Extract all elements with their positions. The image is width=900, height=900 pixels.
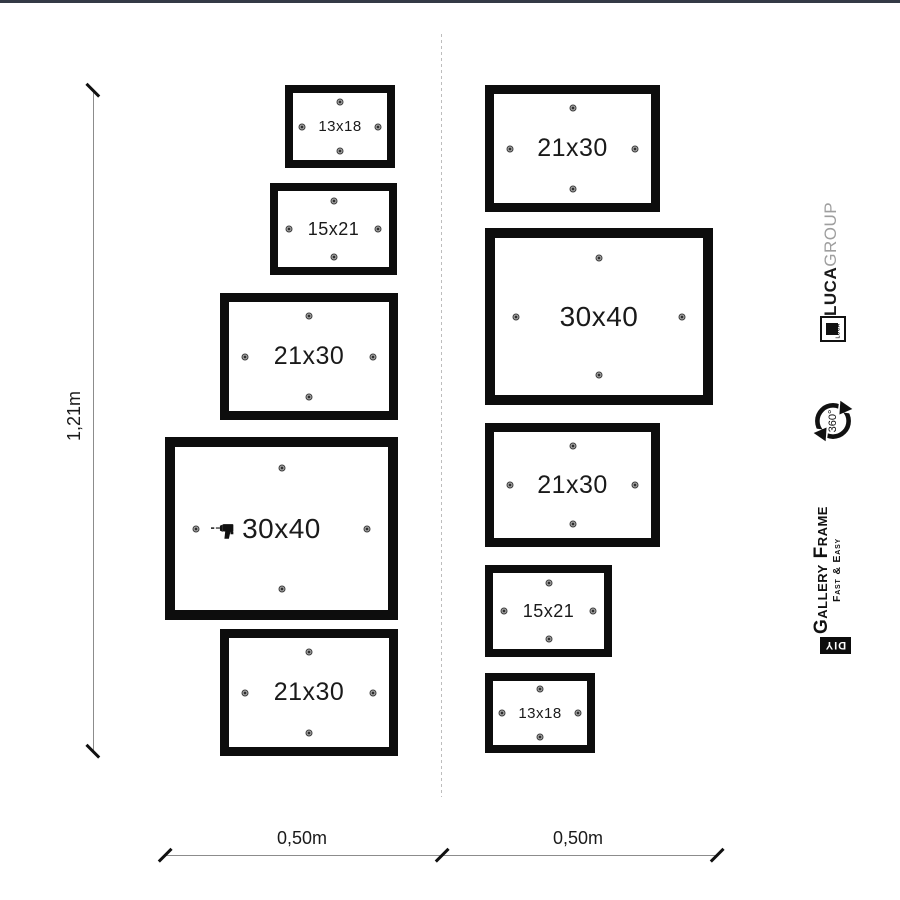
wall-height-label: 1,21m <box>64 374 86 458</box>
screw-dot <box>306 729 313 736</box>
frame-size-label: 21x30 <box>274 342 345 371</box>
height-dimension-line <box>93 89 94 752</box>
picture-frame: 30x40 <box>485 228 713 405</box>
screw-dot <box>537 733 544 740</box>
frame-size-label: 21x30 <box>274 678 345 707</box>
screw-dot <box>286 226 293 233</box>
screw-dot <box>512 313 519 320</box>
center-dashed-divider <box>441 34 442 797</box>
screw-dot <box>574 710 581 717</box>
screw-dot <box>374 226 381 233</box>
screw-dot <box>242 689 249 696</box>
picture-frame: 15x21 <box>270 183 397 275</box>
screw-dot <box>569 442 576 449</box>
picture-frame: 21x30 <box>220 293 398 420</box>
screw-dot <box>299 123 306 130</box>
screw-dot <box>501 608 508 615</box>
picture-frame: 15x21 <box>485 565 612 657</box>
gallery-wall-diagram: 1,21m 0,50m 0,50m 13x1815x2121x3030x4021… <box>0 0 900 900</box>
rotation-360-icon: 360° <box>810 397 856 445</box>
frame-size-label: 13x18 <box>518 705 561 722</box>
screw-dot <box>306 649 313 656</box>
screw-dot <box>337 98 344 105</box>
screw-dot <box>278 465 285 472</box>
screw-dot <box>632 482 639 489</box>
screw-dot <box>569 185 576 192</box>
product-name: Gallery Frame <box>812 497 831 643</box>
screw-dot <box>242 353 249 360</box>
picture-frame: 21x30 <box>220 629 398 756</box>
screw-dot <box>306 393 313 400</box>
screw-dot <box>632 145 639 152</box>
wall-width-right-label: 0,50m <box>538 828 618 849</box>
picture-frame: 30x40 <box>165 437 398 620</box>
screw-dot <box>537 686 544 693</box>
screw-dot <box>545 579 552 586</box>
brand-name: LUCAGROUP <box>821 206 843 316</box>
picture-frame: 13x18 <box>285 85 395 168</box>
picture-frame: 13x18 <box>485 673 595 753</box>
screw-dot <box>370 353 377 360</box>
screw-dot <box>330 254 337 261</box>
width-dimension-line-left <box>165 855 442 856</box>
screw-dot <box>506 482 513 489</box>
picture-frame: 21x30 <box>485 423 660 547</box>
rotation-360-label: 360° <box>827 410 839 433</box>
screw-dot <box>337 148 344 155</box>
picture-frame: 21x30 <box>485 85 660 212</box>
frame-size-label: 15x21 <box>523 601 575 622</box>
frame-size-label: 15x21 <box>308 219 360 240</box>
luca-logo-word: LUCA <box>835 323 841 338</box>
screw-dot <box>330 197 337 204</box>
screw-dot <box>569 521 576 528</box>
drill-icon <box>211 518 237 540</box>
frame-size-label: 30x40 <box>560 301 639 333</box>
screw-dot <box>306 313 313 320</box>
screw-dot <box>278 585 285 592</box>
screw-dot <box>545 636 552 643</box>
diy-badge: DIY <box>820 637 851 654</box>
screw-dot <box>499 710 506 717</box>
brand-name-group: GROUP <box>821 202 840 267</box>
screw-dot <box>679 313 686 320</box>
screw-dot <box>569 105 576 112</box>
frame-size-label: 21x30 <box>537 134 608 163</box>
screw-dot <box>506 145 513 152</box>
screw-dot <box>370 689 377 696</box>
luca-logo-icon: LUCA <box>820 316 846 342</box>
product-tagline: Fast & Easy <box>831 497 843 643</box>
top-border-bar <box>0 0 900 3</box>
screw-dot <box>596 255 603 262</box>
frame-size-label: 30x40 <box>242 513 321 545</box>
product-name-block: Gallery Frame Fast & Easy <box>812 497 848 643</box>
brand-name-luca: LUCA <box>821 267 840 316</box>
screw-dot <box>374 123 381 130</box>
screw-dot <box>193 525 200 532</box>
frame-size-label: 21x30 <box>537 471 608 500</box>
frame-size-label: 13x18 <box>318 118 361 135</box>
width-dimension-line-right <box>442 855 717 856</box>
screw-dot <box>363 525 370 532</box>
screw-dot <box>589 608 596 615</box>
screw-dot <box>596 371 603 378</box>
wall-width-left-label: 0,50m <box>262 828 342 849</box>
